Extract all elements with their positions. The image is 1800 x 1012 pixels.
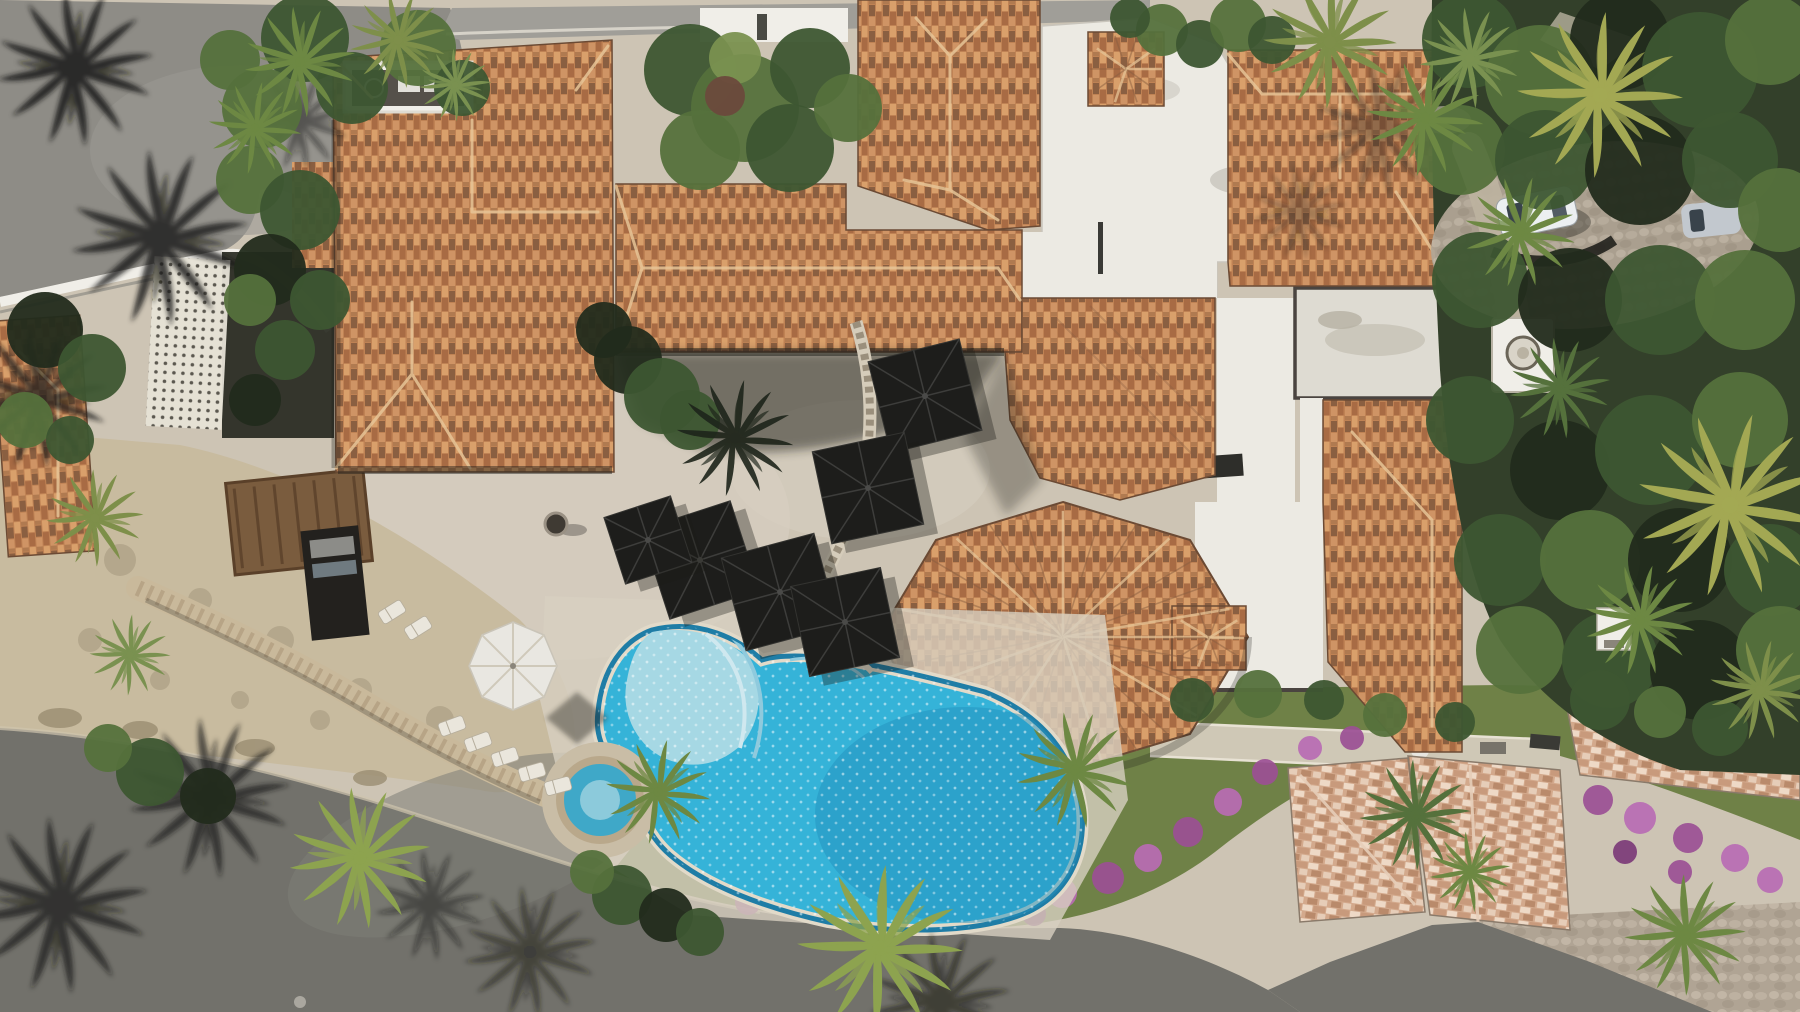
tree-canopy bbox=[200, 30, 260, 90]
tree-canopy bbox=[1570, 670, 1630, 730]
tree-canopy bbox=[1540, 510, 1640, 610]
white-roof-sliver bbox=[1300, 398, 1323, 502]
tree-canopy bbox=[58, 334, 126, 402]
aerial-photo-stage bbox=[0, 0, 1800, 1012]
tree-canopy bbox=[180, 768, 236, 824]
tree-canopy bbox=[255, 320, 315, 380]
outdoor-kitchen bbox=[300, 525, 369, 640]
flower-cluster bbox=[1673, 823, 1703, 853]
tree-canopy bbox=[705, 76, 745, 116]
flower-cluster bbox=[1298, 736, 1322, 760]
tree-canopy bbox=[676, 908, 724, 956]
manhole bbox=[294, 996, 306, 1008]
tree-canopy bbox=[814, 74, 882, 142]
flower-cluster bbox=[1721, 844, 1749, 872]
tree-canopy bbox=[224, 274, 276, 326]
flower-cluster bbox=[1252, 759, 1278, 785]
tree-canopy bbox=[1510, 420, 1610, 520]
flower-cluster bbox=[1757, 867, 1783, 893]
tree-canopy bbox=[229, 374, 281, 426]
flower-cluster bbox=[1613, 840, 1637, 864]
tree-canopy bbox=[1695, 250, 1795, 350]
car-windshield bbox=[1689, 209, 1705, 232]
flower-cluster bbox=[1173, 817, 1203, 847]
tree-canopy bbox=[1454, 514, 1546, 606]
tree-canopy bbox=[290, 270, 350, 330]
white-roof-link bbox=[1022, 232, 1217, 298]
tree-canopy bbox=[1634, 686, 1686, 738]
black-shade-umbrella bbox=[812, 430, 938, 556]
roof-stain bbox=[1318, 311, 1362, 329]
roof-pole bbox=[1098, 222, 1103, 274]
flower-cluster bbox=[1214, 788, 1242, 816]
tree-canopy bbox=[1435, 702, 1475, 742]
tree-canopy bbox=[46, 416, 94, 464]
tree-canopy bbox=[1363, 693, 1407, 737]
flower-cluster bbox=[1668, 860, 1692, 884]
flower-cluster bbox=[1624, 802, 1656, 834]
tree-canopy bbox=[1304, 680, 1344, 720]
garden-gate bbox=[757, 14, 767, 40]
flower-cluster bbox=[1092, 862, 1124, 894]
tree-canopy bbox=[84, 724, 132, 772]
tree-canopy bbox=[1426, 376, 1514, 464]
black-shade-umbrella bbox=[790, 565, 913, 688]
tree-canopy bbox=[1234, 670, 1282, 718]
tree-canopy bbox=[1692, 700, 1748, 756]
tree-canopy bbox=[1476, 606, 1564, 694]
flower-cluster bbox=[1134, 844, 1162, 872]
flower-cluster bbox=[1583, 785, 1613, 815]
tree-canopy bbox=[709, 32, 761, 84]
tree-canopy bbox=[660, 110, 740, 190]
tree-canopy bbox=[576, 302, 632, 358]
tree-canopy bbox=[570, 850, 614, 894]
tree-canopy bbox=[1170, 678, 1214, 722]
flower-cluster bbox=[1340, 726, 1364, 750]
aerial-photo bbox=[0, 0, 1800, 1012]
